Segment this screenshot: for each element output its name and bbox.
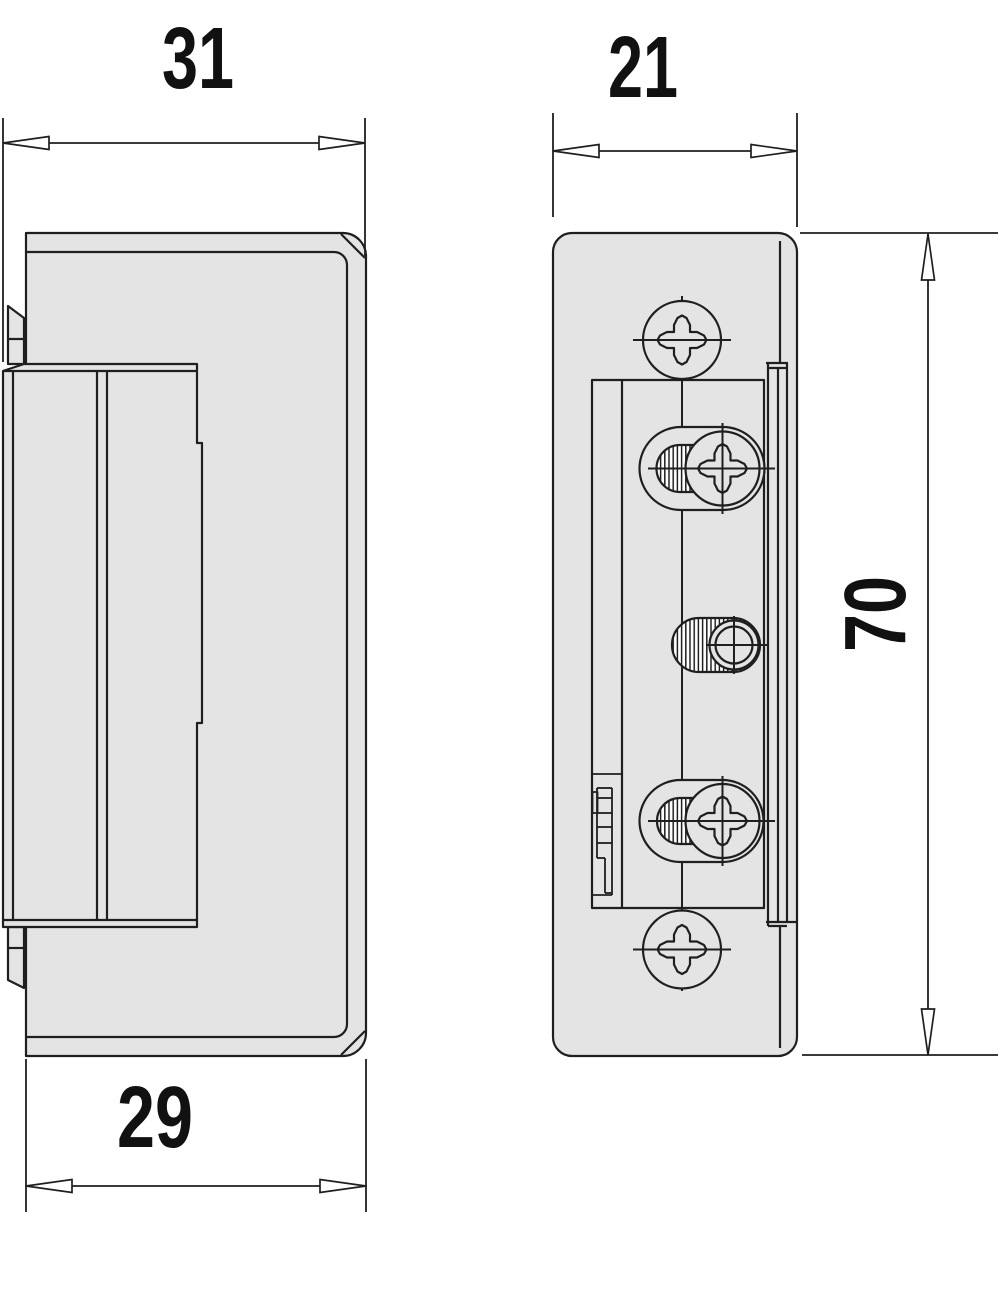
keeper-pivot-top	[8, 306, 24, 364]
dim-label-front-width: 21	[608, 19, 678, 116]
arrow-left-icon	[3, 137, 49, 150]
arrow-left-icon	[26, 1180, 72, 1193]
drawing-page: 31 21 29 70	[0, 0, 1000, 1308]
arrow-up-icon	[922, 234, 935, 280]
keeper-flap-side	[3, 364, 202, 927]
technical-drawing: 31 21 29 70	[0, 0, 1000, 1308]
dim-front-height: 70	[800, 233, 998, 1055]
arrow-down-icon	[922, 1009, 935, 1055]
front-view	[553, 233, 797, 1056]
dim-label-front-height: 70	[827, 576, 924, 652]
arrow-right-icon	[319, 137, 365, 150]
arrow-right-icon	[320, 1180, 366, 1193]
arrow-left-icon	[553, 145, 599, 158]
arrow-right-icon	[751, 145, 797, 158]
keeper-pivot-bottom	[8, 927, 24, 988]
dim-front-width: 21	[553, 19, 797, 227]
dim-label-side-overall-depth: 31	[162, 10, 234, 107]
dim-side-body-depth: 29	[26, 1059, 366, 1212]
side-view	[3, 233, 366, 1056]
dim-label-side-body-depth: 29	[117, 1069, 193, 1166]
